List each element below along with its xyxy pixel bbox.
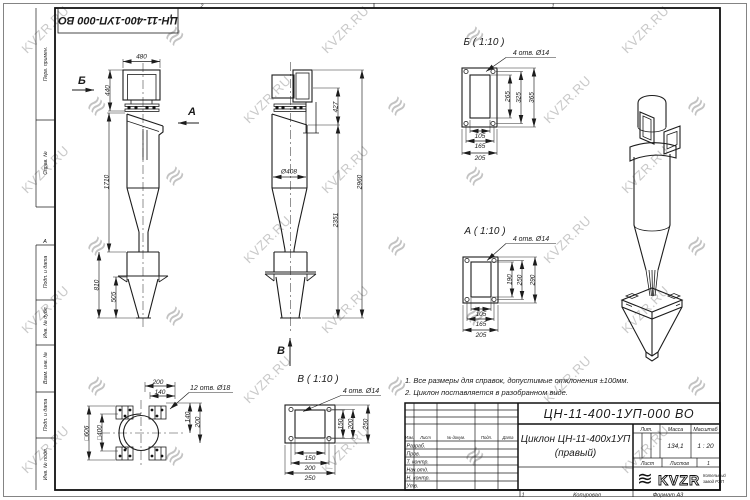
detail-v-dim-250h: 250 <box>304 475 316 482</box>
plan-dim-140r: 140 <box>185 411 192 422</box>
tb-name-line2: (правый) <box>555 448 596 459</box>
dim-1710: 1710 <box>104 174 111 189</box>
margin-label-inv-podl: Инв. № подл. <box>43 448 49 480</box>
plan-dim-400: □400 <box>97 425 104 440</box>
detail-a-dim-290: 290 <box>530 274 537 286</box>
tb-name-line1: Циклон ЦН-11-400х1УП <box>521 434 631 445</box>
kvzr-logo-sub2: завод РЭП <box>702 479 725 484</box>
tb-col-list: Лист <box>419 435 431 440</box>
detail-a-dim-165: 165 <box>476 321 487 328</box>
tb-masshtab-label: Масштаб <box>693 427 718 433</box>
tb-col-docum: № докум. <box>447 435 465 440</box>
detail-v-dim-200h: 200 <box>304 465 316 472</box>
view-arrow-b-label: Б <box>78 75 86 87</box>
tb-list-label: Лист <box>640 461 655 467</box>
kvzr-logo-sub1: Котельный <box>703 473 726 478</box>
drawing-sheet: 2 1 А ЦН-11-400-1УП-000 ВО Перв. примен.… <box>0 0 750 500</box>
note-1: 1. Все размеры для справок, допустимые о… <box>405 376 629 385</box>
zone-number-1: 1 <box>552 3 555 9</box>
dim-2960: 2960 <box>357 174 364 190</box>
detail-a-holes-label: 4 отв. Ø14 <box>513 236 549 243</box>
detail-a-dim-105: 105 <box>476 311 487 318</box>
plan-dim-200t: 200 <box>152 379 164 386</box>
margin-label-vzam: Взам. инв. № <box>43 352 49 384</box>
detail-b-holes-label: 4 отв. Ø14 <box>513 50 549 57</box>
plan-dim-140t: 140 <box>155 389 166 396</box>
dim-427: 427 <box>333 101 340 112</box>
detail-b-dim-105: 105 <box>475 133 486 140</box>
detail-b-dim-265: 265 <box>505 91 512 103</box>
tb-col-podp: Подп. <box>481 435 492 440</box>
footer-kopiroval: Копировал <box>573 493 602 499</box>
dim-810: 810 <box>94 279 101 290</box>
dim-505: 505 <box>111 291 118 302</box>
tb-row-prov: Пров. <box>407 452 421 458</box>
tb-massa-value: 134,1 <box>667 443 684 450</box>
detail-b-dim-165: 165 <box>475 143 486 150</box>
footer-format: Формат А3 <box>653 493 684 499</box>
detail-b-dim-365: 365 <box>529 92 536 103</box>
kvzr-logo-mark-icon: ≋ <box>637 469 653 490</box>
detail-b-dim-205: 205 <box>474 155 486 162</box>
zone-number-2: 2 <box>200 3 204 9</box>
margin-label-perv: Перв. примен. <box>43 47 49 81</box>
tb-col-izm: Изм. <box>405 435 414 440</box>
detail-v: В ( 1:10 ) 4 отв. Ø14 150 200 250 150 20… <box>285 374 381 482</box>
plan-dim-200r: 200 <box>195 416 202 428</box>
view-arrow-v-label: В <box>277 345 285 357</box>
dim-d408: Ø408 <box>280 169 297 176</box>
detail-b-title: Б ( 1:10 ) <box>464 37 505 48</box>
tb-listov-label: Листов <box>669 461 689 467</box>
tb-row-nkontr: Н. контр. <box>407 476 430 482</box>
detail-a: А ( 1:10 ) 4 отв. Ø14 190 250 290 105 16… <box>463 226 556 339</box>
footer-margin: 1 Копировал Формат А3 <box>521 493 684 499</box>
zone-letter-a: А <box>42 239 47 245</box>
plan-dim-606: □606 <box>84 425 91 440</box>
kvzr-logo-text: KVZR <box>658 472 700 488</box>
dim-440: 440 <box>105 85 112 96</box>
detail-v-title: В ( 1:10 ) <box>297 374 338 385</box>
margin-label-podp1: Подп. и дата <box>43 256 49 289</box>
detail-a-title: А ( 1:10 ) <box>463 226 505 237</box>
margin-label-podp2: Подп. и дата <box>43 399 49 432</box>
detail-plan: 200 140 12 отв. Ø18 140 200 □606 □400 <box>84 379 234 468</box>
tb-row-razrab: Разраб. <box>407 444 426 450</box>
detail-a-dim-250: 250 <box>517 274 524 286</box>
dim-480: 480 <box>136 54 147 61</box>
plan-holes-label: 12 отв. Ø18 <box>190 385 230 392</box>
detail-a-dim-190: 190 <box>507 274 514 285</box>
margin-label-sprav: Справ. № <box>43 151 49 175</box>
detail-v-dim-150h: 150 <box>305 455 316 462</box>
detail-v-dim-250v: 250 <box>363 418 370 430</box>
detail-b: Б ( 1:10 ) 4 отв. Ø14 265 325 365 105 16… <box>462 37 556 162</box>
sheet-frame: 2 1 А ЦН-11-400-1УП-000 ВО <box>4 3 747 497</box>
tb-row-nachotd: Нач.отд. <box>407 468 429 474</box>
tb-row-tkontr: Т. контр. <box>407 460 429 466</box>
tb-listov-value: 1 <box>707 461 710 467</box>
tb-massa-label: Масса <box>668 427 683 433</box>
detail-v-dim-150v: 150 <box>338 418 345 429</box>
view-side: 480 440 1710 810 505 Б А <box>72 54 199 329</box>
tb-lit-label: Лит. <box>639 427 652 433</box>
margin-label-inv-dubl: Инв. № дубл. <box>43 306 49 338</box>
title-block: Изм. Лист № докум. Подп. Дата Разраб. Пр… <box>405 403 726 490</box>
detail-a-dim-205: 205 <box>475 332 487 339</box>
dim-2351: 2351 <box>333 212 340 228</box>
footer-sheet-num: 1 <box>521 493 524 499</box>
view-arrow-a-label: А <box>187 106 196 118</box>
tb-masshtab-value: 1 : 20 <box>697 443 714 450</box>
top-stamp-doc-number: ЦН-11-400-1УП-000 ВО <box>58 14 178 26</box>
tb-col-data: Дата <box>501 435 514 440</box>
view-front: Ø408 427 2351 2960 В <box>265 62 364 366</box>
tb-row-utv: Утв. <box>407 484 419 490</box>
notes: 1. Все размеры для справок, допустимые о… <box>404 376 629 397</box>
detail-v-dim-200v: 200 <box>348 418 355 430</box>
view-3d <box>622 96 682 362</box>
tb-doc-number: ЦН-11-400-1УП-000 ВО <box>544 407 695 421</box>
detail-b-dim-325: 325 <box>516 92 523 103</box>
left-margin-strip: Перв. примен. Справ. № Подп. и дата Инв.… <box>36 8 55 490</box>
detail-v-holes-label: 4 отв. Ø14 <box>343 388 379 395</box>
note-2: 2. Циклон поставляется в разобранном вид… <box>404 388 568 397</box>
